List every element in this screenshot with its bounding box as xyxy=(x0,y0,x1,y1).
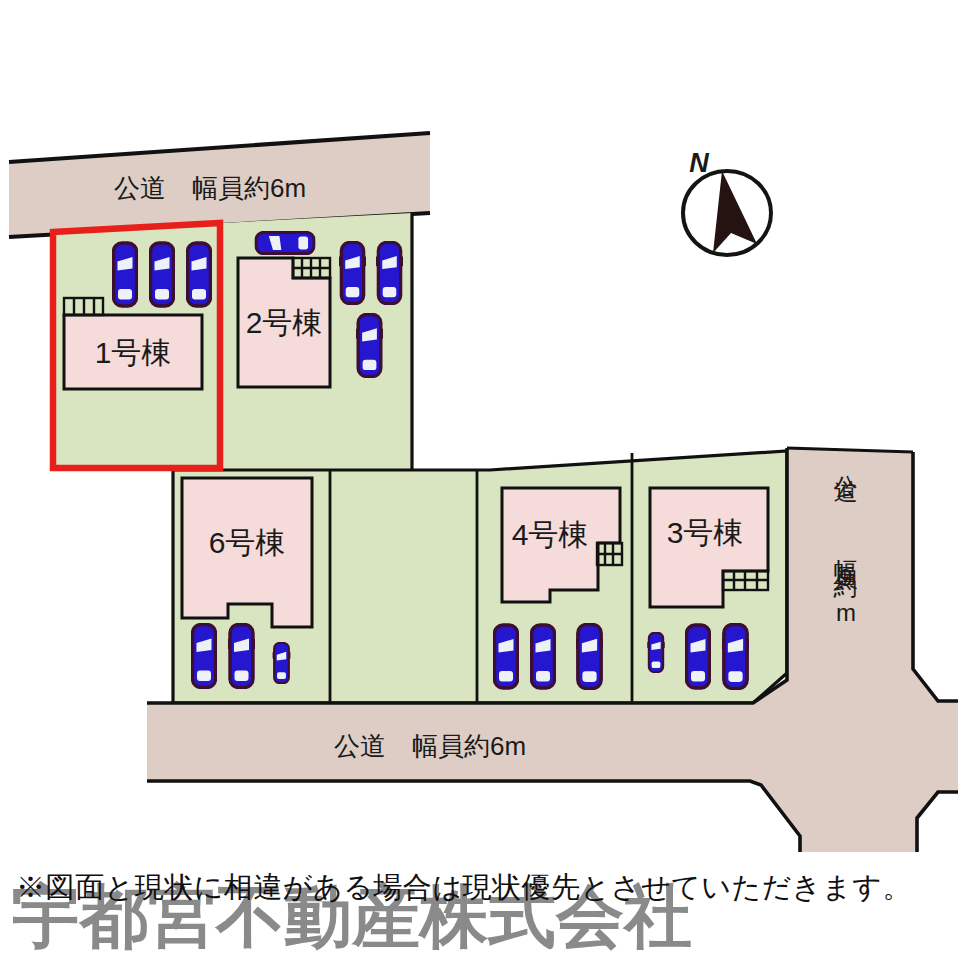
car-icon xyxy=(575,625,603,689)
building-2-label: 2号棟 xyxy=(246,306,323,339)
disclaimer-text: ※図面と現状に相違がある場合は現状優先とさせていただきます。 xyxy=(16,871,912,904)
car-icon xyxy=(148,243,176,306)
building-6: 6号棟 xyxy=(182,478,312,627)
car-icon xyxy=(529,625,557,688)
car-icon xyxy=(339,242,366,303)
car-icon xyxy=(111,243,139,306)
car-icon xyxy=(492,625,520,688)
site-plan-drawing: 公道 幅員約6m 公道 幅員約6m 公道 幅員約9m 1号棟 xyxy=(0,0,960,870)
car-icon xyxy=(185,243,213,306)
road-right-label-bottom: 幅員約9m xyxy=(833,540,860,634)
road-top-label: 公道 幅員約6m xyxy=(114,173,306,203)
car-icon xyxy=(684,625,712,688)
plot-1: 1号棟 xyxy=(53,223,220,468)
car-icon xyxy=(376,242,403,303)
car-icon xyxy=(721,625,749,689)
building-2: 2号棟 xyxy=(238,258,330,387)
car-icon xyxy=(256,230,314,256)
car-icon xyxy=(356,314,384,376)
building-3: 3号棟 xyxy=(650,488,768,607)
road-bottom-label: 公道 幅員約6m xyxy=(334,731,526,761)
building-1-label: 1号棟 xyxy=(95,336,172,369)
building-4-label: 4号棟 xyxy=(512,518,589,551)
car-icon xyxy=(228,625,256,688)
building-6-label: 6号棟 xyxy=(209,526,286,559)
car-icon xyxy=(647,633,664,672)
car-icon xyxy=(190,625,218,688)
car-icon xyxy=(273,643,291,683)
north-compass-icon: N xyxy=(683,148,771,255)
site-plan-page: 公道 幅員約6m 公道 幅員約6m 公道 幅員約9m 1号棟 xyxy=(0,0,960,960)
building-3-label: 3号棟 xyxy=(667,516,744,549)
north-label: N xyxy=(689,148,709,178)
